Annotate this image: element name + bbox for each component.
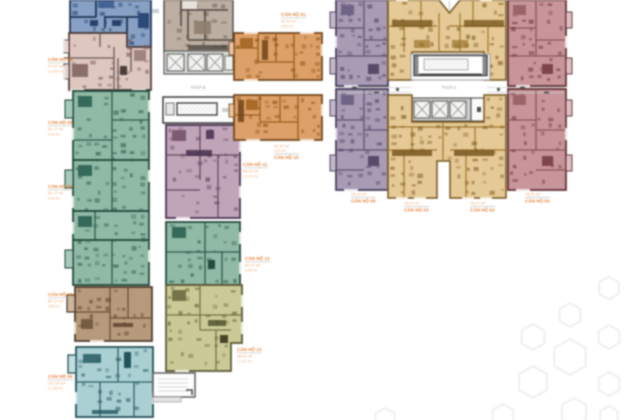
svg-text:95.37 m²: 95.37 m² bbox=[237, 354, 253, 359]
svg-text:95.12 m²: 95.12 m² bbox=[243, 169, 259, 174]
svg-text:CĂN HỘ 02: CĂN HỘ 02 bbox=[470, 205, 495, 212]
svg-text:CĂN HỘ 10: CĂN HỘ 10 bbox=[274, 153, 299, 160]
svg-text:(945 ft²): (945 ft²) bbox=[48, 197, 60, 201]
svg-text:76.27 m²: 76.27 m² bbox=[470, 201, 486, 206]
svg-text:THÁP A: THÁP A bbox=[442, 85, 457, 90]
svg-text:91.97 m²: 91.97 m² bbox=[281, 19, 297, 24]
svg-text:(938 ft²): (938 ft²) bbox=[48, 305, 60, 309]
svg-text:78.21 m²: 78.21 m² bbox=[525, 192, 541, 197]
svg-text:CĂN HỘ 09: CĂN HỘ 09 bbox=[48, 372, 73, 379]
svg-text:CĂN HỘ 13: CĂN HỘ 13 bbox=[237, 345, 262, 352]
svg-text:(1,260 ft²): (1,260 ft²) bbox=[48, 387, 63, 391]
svg-text:76.27 m²: 76.27 m² bbox=[404, 201, 420, 206]
svg-text:(945 ft²): (945 ft²) bbox=[48, 133, 60, 137]
svg-text:CĂN HỘ 12: CĂN HỘ 12 bbox=[245, 254, 270, 261]
svg-text:CĂN HỘ 05: CĂN HỘ 05 bbox=[351, 196, 376, 203]
svg-text:CĂN HỘ 01: CĂN HỘ 01 bbox=[281, 10, 306, 17]
svg-text:78.21 m²: 78.21 m² bbox=[351, 192, 367, 197]
svg-text:CĂN HỘ 03: CĂN HỘ 03 bbox=[404, 205, 429, 212]
svg-text:CĂN HỘ 05: CĂN HỘ 05 bbox=[48, 118, 73, 125]
svg-text:91.97 m²: 91.97 m² bbox=[274, 144, 290, 149]
svg-text:CĂN HỘ 04: CĂN HỘ 04 bbox=[525, 196, 550, 203]
svg-text:(1,024 ft²): (1,024 ft²) bbox=[243, 175, 258, 179]
svg-text:(1,027 ft²): (1,027 ft²) bbox=[237, 360, 252, 364]
svg-text:CĂN HỘ 11: CĂN HỘ 11 bbox=[243, 160, 268, 167]
svg-text:CĂN HỘ 06: CĂN HỘ 06 bbox=[48, 182, 73, 189]
svg-text:87.17 m²: 87.17 m² bbox=[48, 299, 64, 304]
svg-text:117.04 m²: 117.04 m² bbox=[48, 381, 66, 386]
svg-text:87.77 m²: 87.77 m² bbox=[245, 263, 261, 268]
svg-text:CĂN HỘ 04: CĂN HỘ 04 bbox=[48, 55, 73, 62]
svg-text:(990 ft²): (990 ft²) bbox=[274, 149, 286, 153]
svg-text:87.77 m²: 87.77 m² bbox=[48, 127, 64, 132]
svg-text:CĂN HỘ 08: CĂN HỘ 08 bbox=[48, 290, 73, 297]
svg-text:(945 ft²): (945 ft²) bbox=[245, 269, 257, 273]
svg-text:97.07 m²: 97.07 m² bbox=[48, 64, 64, 69]
svg-text:87.77 m²: 87.77 m² bbox=[48, 191, 64, 196]
svg-text:(1,045 ft²): (1,045 ft²) bbox=[48, 70, 63, 74]
svg-text:(990 ft²): (990 ft²) bbox=[281, 25, 293, 29]
svg-text:THÁP B: THÁP B bbox=[190, 85, 205, 90]
